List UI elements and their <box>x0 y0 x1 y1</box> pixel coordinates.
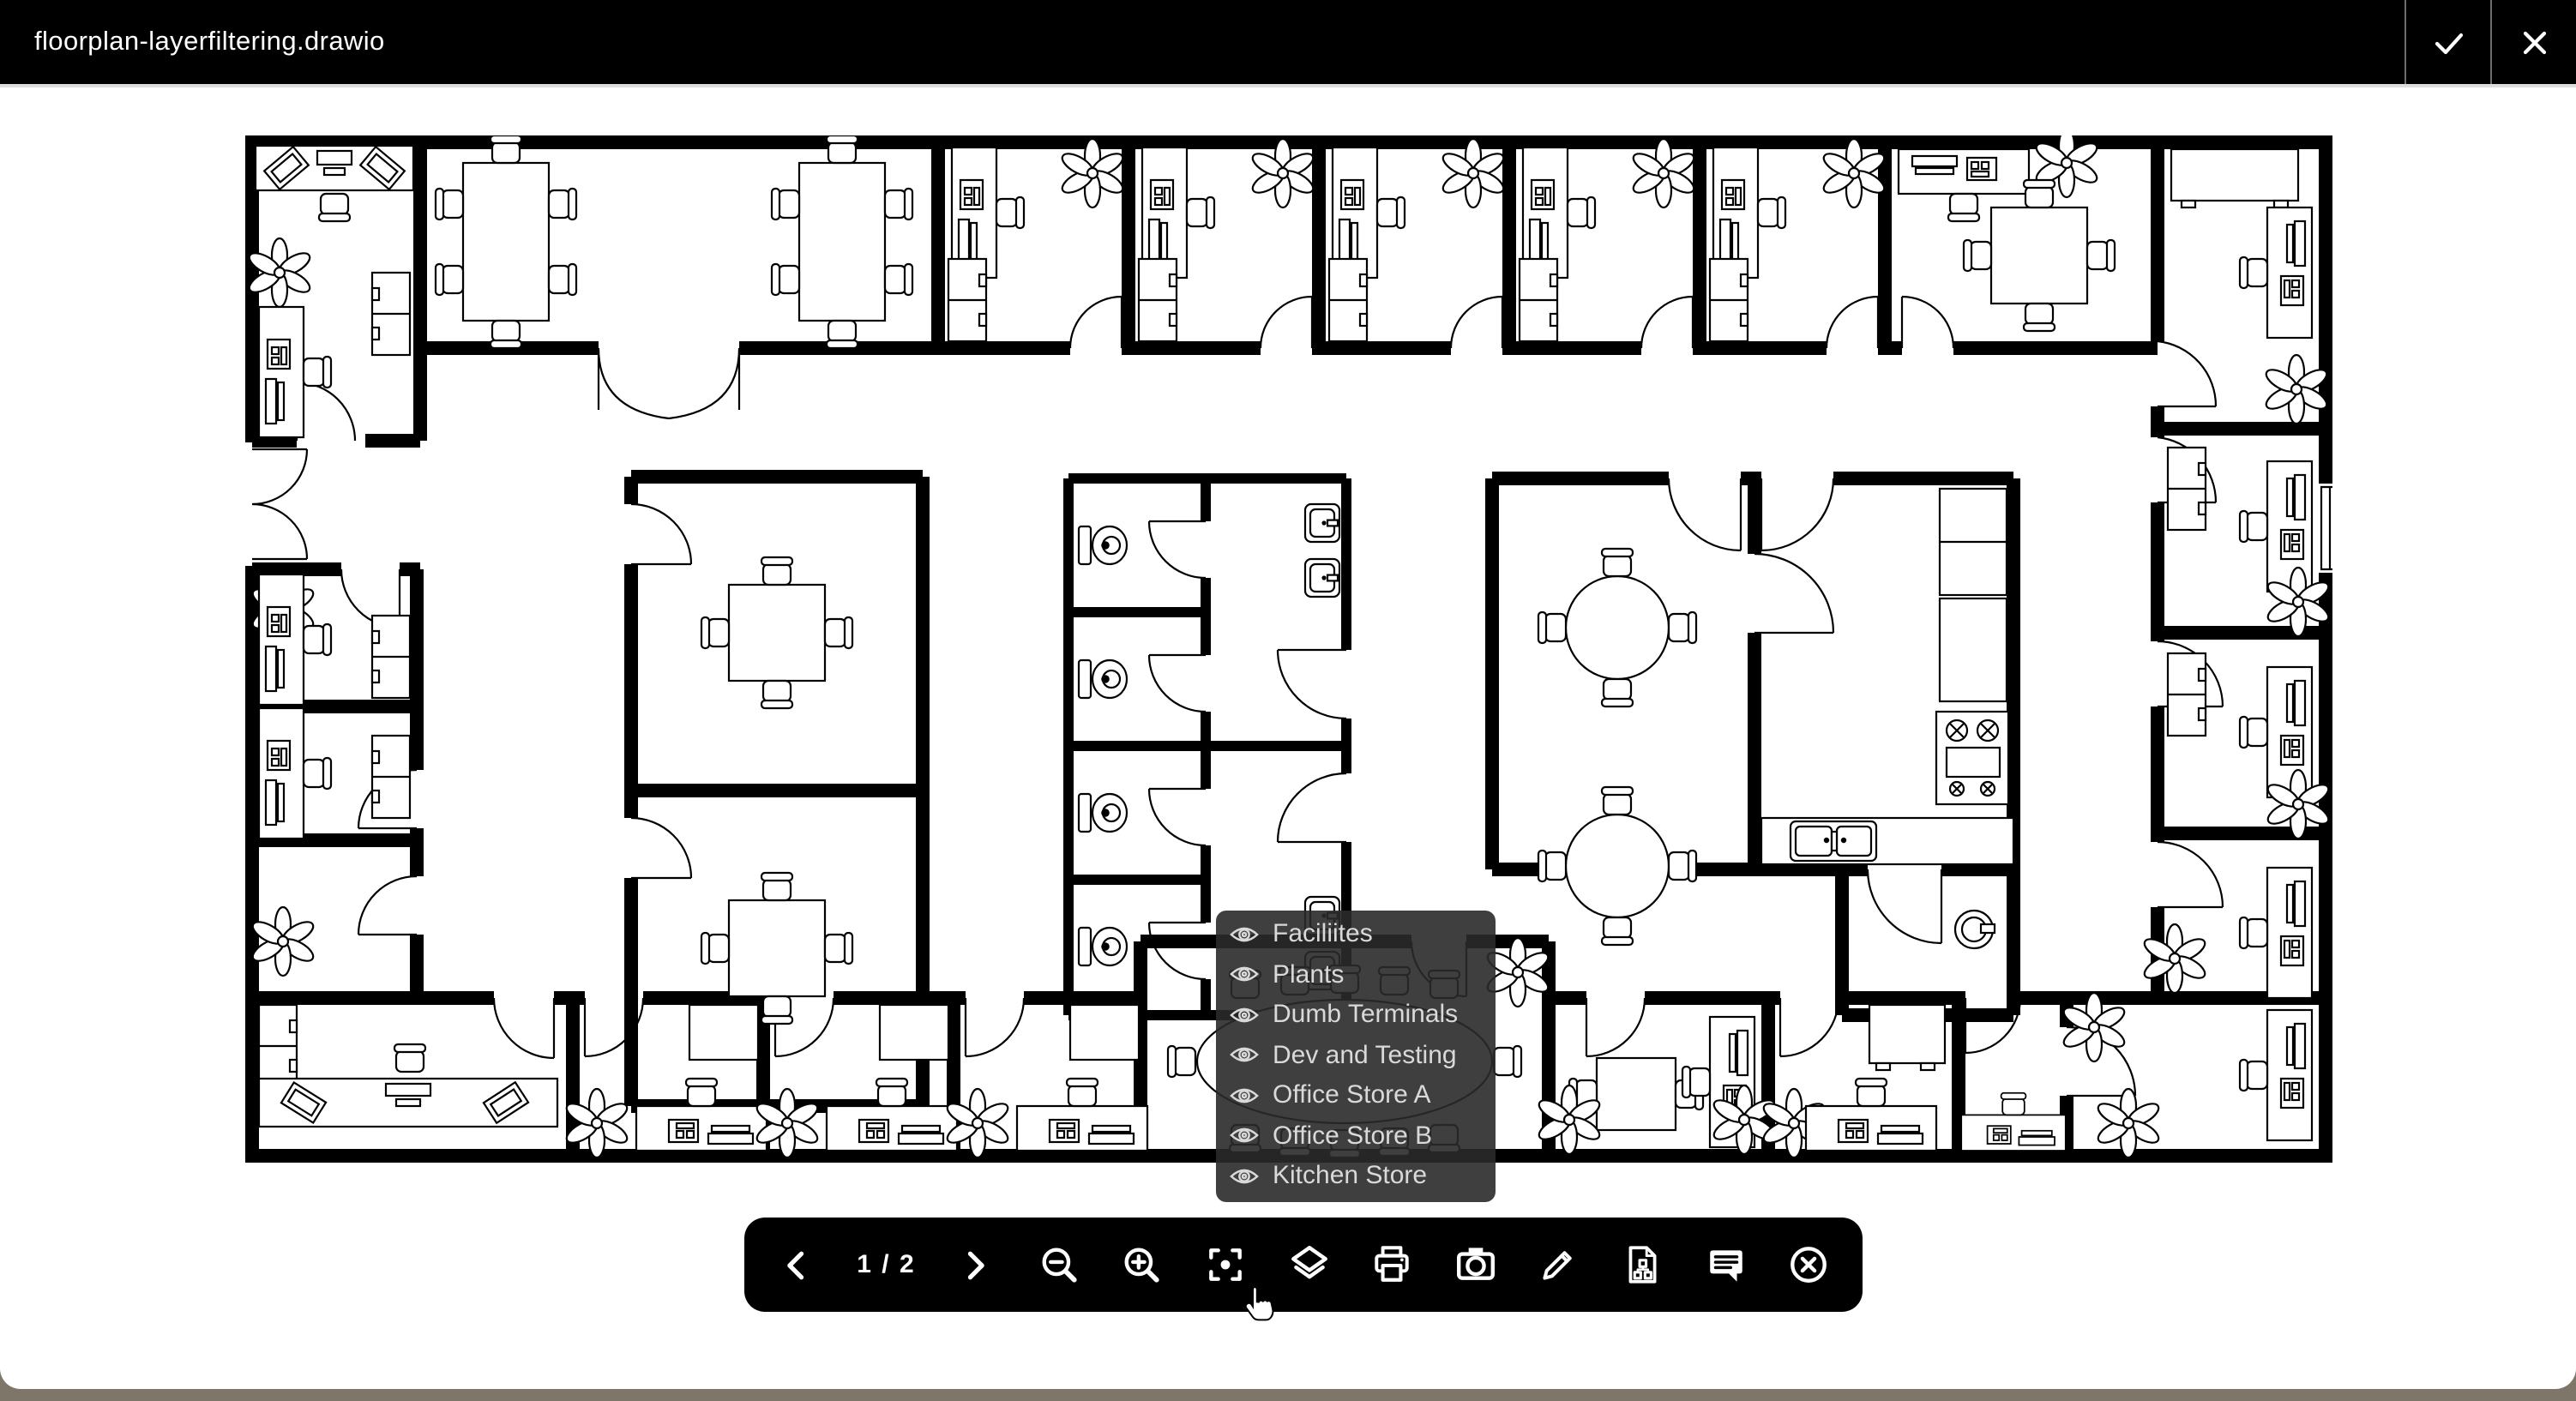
confirm-button[interactable] <box>2404 0 2490 84</box>
eye-icon <box>1230 1045 1259 1066</box>
check-icon <box>2428 21 2469 63</box>
zoom-out-button[interactable] <box>1034 1241 1082 1289</box>
layer-item-faciliites[interactable]: Faciliites <box>1216 914 1496 954</box>
layer-label: Dumb Terminals <box>1273 1001 1458 1030</box>
next-page-button[interactable] <box>951 1241 999 1289</box>
export-diagram-button[interactable] <box>1618 1241 1666 1289</box>
close-lightbox-button[interactable] <box>1785 1241 1833 1289</box>
layer-item-office-store-b[interactable]: Office Store B <box>1216 1115 1496 1156</box>
hand-cursor <box>1240 1284 1278 1329</box>
layer-label: Dev and Testing <box>1273 1041 1457 1070</box>
eye-icon <box>1230 1166 1259 1187</box>
close-icon <box>2513 21 2555 63</box>
titlebar-buttons <box>2404 0 2576 84</box>
layers-icon <box>1287 1243 1330 1286</box>
layer-label: Kitchen Store <box>1273 1162 1427 1191</box>
chevron-right-icon <box>956 1246 994 1284</box>
lightbox-window: floorplan-layerfiltering.drawio <box>0 0 2576 1389</box>
print-icon <box>1370 1243 1413 1286</box>
comments-button[interactable] <box>1701 1241 1749 1289</box>
zoom-in-button[interactable] <box>1118 1241 1166 1289</box>
layer-label: Office Store A <box>1273 1081 1431 1110</box>
titlebar: floorplan-layerfiltering.drawio <box>0 0 2576 84</box>
eye-icon <box>1230 1085 1259 1106</box>
eye-icon <box>1230 1126 1259 1146</box>
close-circle-icon <box>1788 1243 1831 1286</box>
layer-item-plants[interactable]: Plants <box>1216 954 1496 995</box>
camera-button[interactable] <box>1452 1241 1500 1289</box>
comment-icon <box>1704 1243 1747 1286</box>
eye-icon <box>1230 924 1259 945</box>
layer-item-kitchen-store[interactable]: Kitchen Store <box>1216 1156 1496 1196</box>
app-window: floorplan-layerfiltering.drawio <box>0 0 2576 1401</box>
lightbox-toolbar: 1 / 2 <box>744 1218 1863 1312</box>
edit-button[interactable] <box>1535 1241 1583 1289</box>
eye-icon <box>1230 965 1259 985</box>
pencil-icon <box>1538 1243 1580 1286</box>
layer-item-dumb-terminals[interactable]: Dumb Terminals <box>1216 995 1496 1035</box>
layer-item-office-store-a[interactable]: Office Store A <box>1216 1075 1496 1115</box>
file-diagram-icon <box>1621 1243 1664 1286</box>
chevron-left-icon <box>779 1246 816 1284</box>
close-window-button[interactable] <box>2490 0 2576 84</box>
layer-item-dev-and-testing[interactable]: Dev and Testing <box>1216 1035 1496 1075</box>
layers-popup: Faciliites Plants Dumb Terminals Dev and… <box>1216 911 1496 1202</box>
layer-label: Office Store B <box>1273 1121 1432 1151</box>
camera-icon <box>1454 1243 1497 1286</box>
layer-label: Plants <box>1273 960 1344 989</box>
zoom-out-icon <box>1037 1243 1080 1286</box>
document-title: floorplan-layerfiltering.drawio <box>34 27 385 57</box>
prev-page-button[interactable] <box>773 1241 822 1289</box>
layer-label: Faciliites <box>1273 920 1373 949</box>
fit-page-button[interactable] <box>1201 1241 1249 1289</box>
fit-page-icon <box>1204 1243 1247 1286</box>
print-button[interactable] <box>1368 1241 1416 1289</box>
zoom-in-icon <box>1121 1243 1164 1286</box>
layers-button[interactable] <box>1285 1241 1333 1289</box>
page-indicator: 1 / 2 <box>857 1250 915 1279</box>
eye-icon <box>1230 1005 1259 1025</box>
